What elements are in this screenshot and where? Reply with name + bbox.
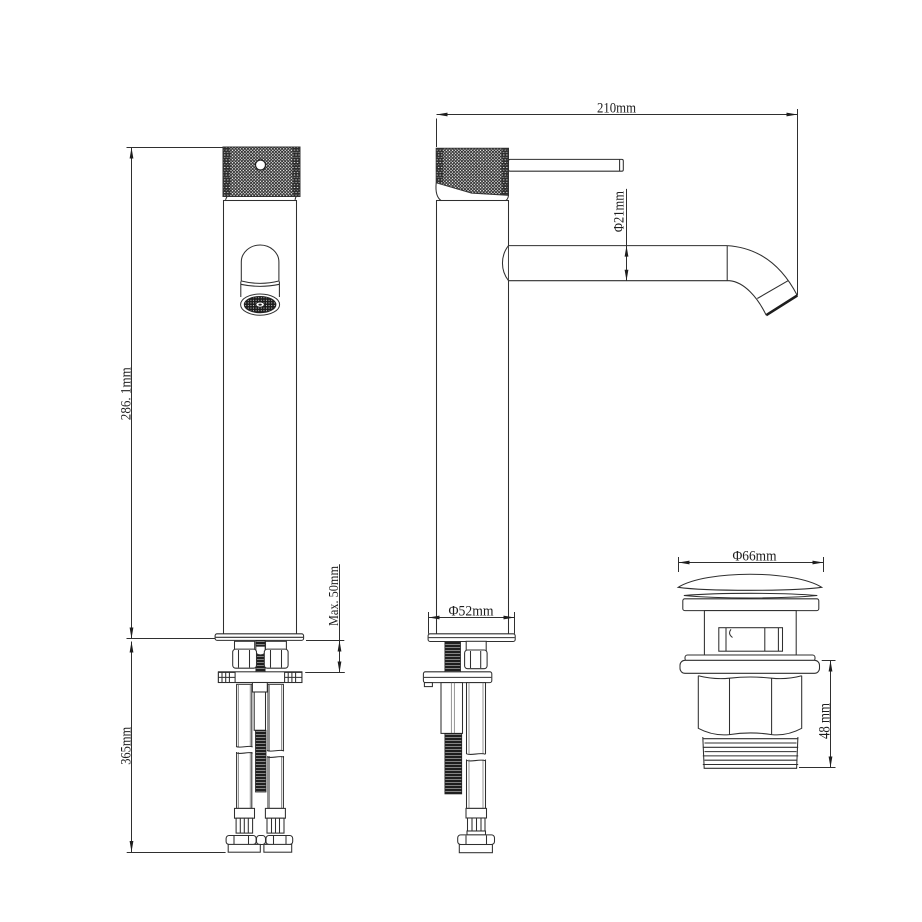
svg-text:Max. 50mm: Max. 50mm xyxy=(327,566,342,626)
svg-text:286. 1mm: 286. 1mm xyxy=(119,367,135,420)
svg-text:Φ21mm: Φ21mm xyxy=(611,191,627,232)
svg-text:Φ66mm: Φ66mm xyxy=(733,549,777,565)
svg-text:48 mm: 48 mm xyxy=(817,703,834,739)
svg-text:Φ52mm: Φ52mm xyxy=(449,603,494,619)
svg-text:365mm: 365mm xyxy=(119,727,135,765)
svg-text:210mm: 210mm xyxy=(597,101,636,117)
